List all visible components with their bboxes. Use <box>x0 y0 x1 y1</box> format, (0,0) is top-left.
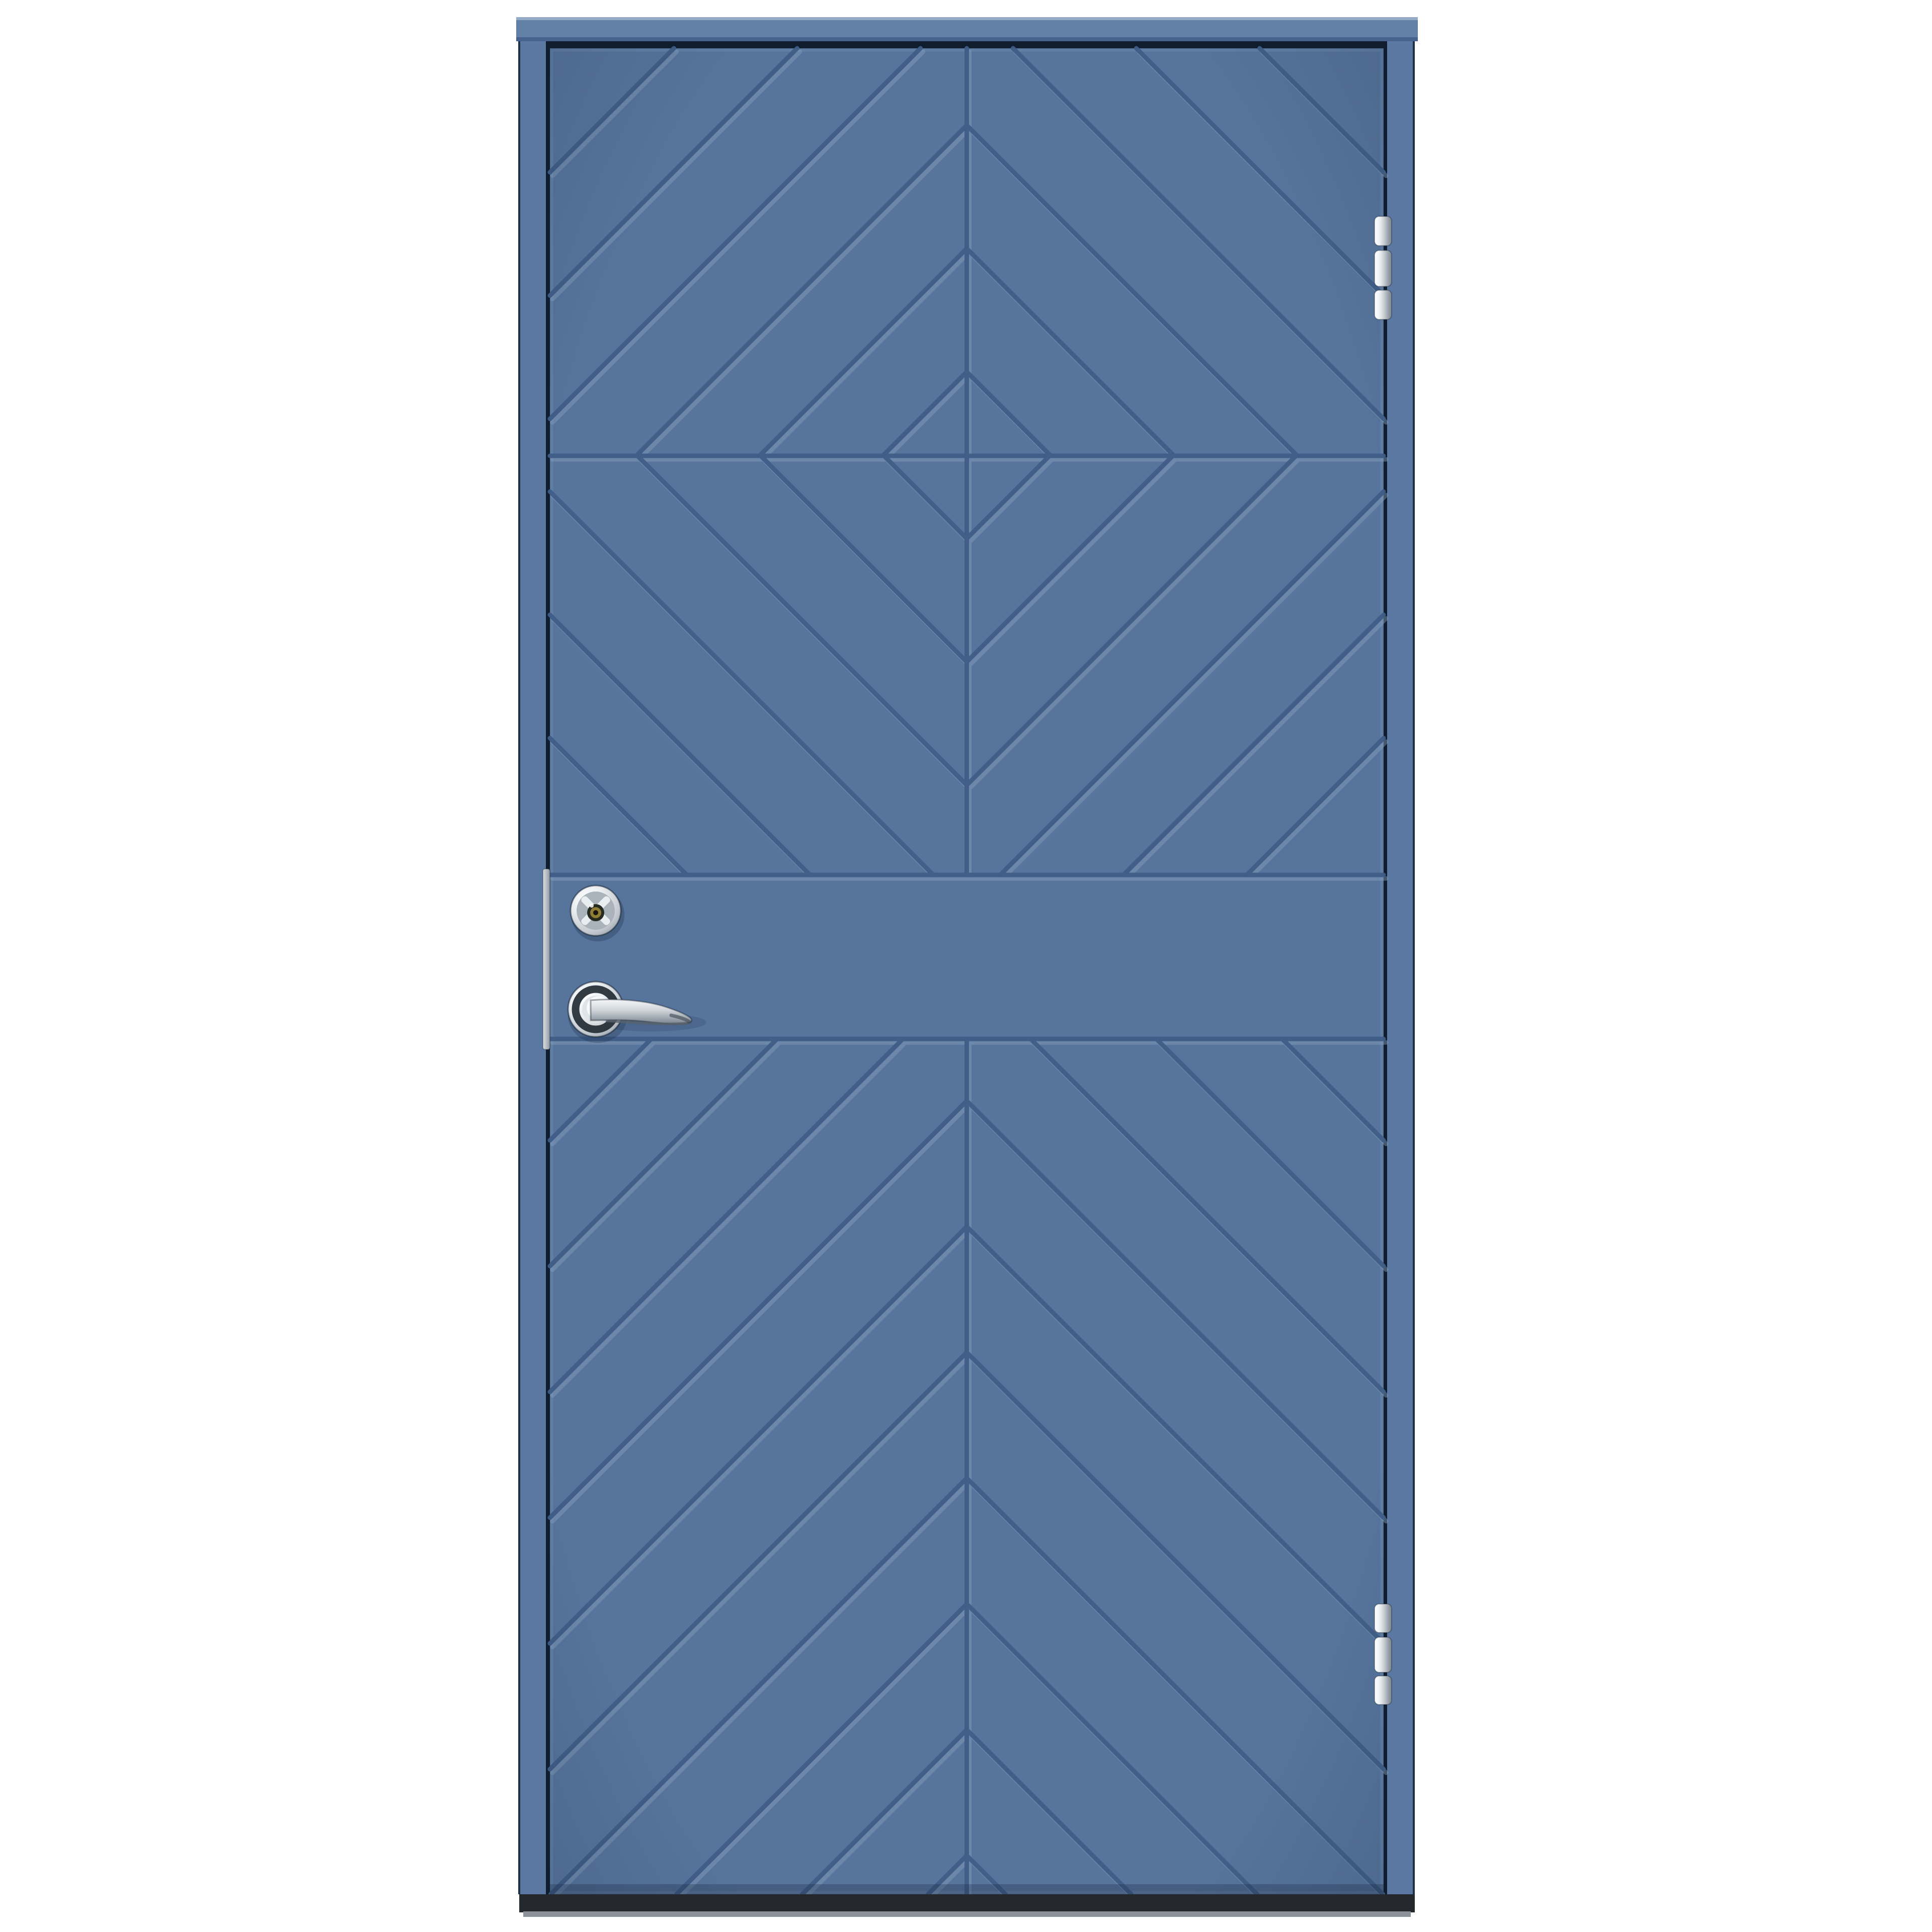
keyhole-slot <box>593 910 598 915</box>
lock-cylinder-glint <box>590 904 594 908</box>
hinge-barrel-segment <box>1375 1637 1392 1672</box>
threshold-bar <box>519 1894 1415 1912</box>
edge-security-plate <box>543 869 550 1050</box>
hinge-barrel-segment <box>1375 216 1392 246</box>
head-casing <box>516 20 1418 37</box>
threshold-sill <box>523 1911 1411 1917</box>
left-jamb <box>520 41 546 1894</box>
door-illustration <box>0 0 1932 1932</box>
right-frame-edge <box>1413 41 1415 1894</box>
hinge-barrel-segment <box>1375 1676 1392 1705</box>
top-hinge <box>1375 216 1392 319</box>
hinge-barrel-segment <box>1375 251 1392 287</box>
door-product-photo <box>0 0 1932 1932</box>
head-casing-shadow <box>516 37 1418 41</box>
left-frame-edge <box>518 41 520 1894</box>
leaf-vignette <box>550 48 1384 1894</box>
hinge-barrel-segment <box>1375 1604 1392 1633</box>
bottom-hinge <box>1375 1604 1392 1705</box>
leaf-bottom-shadow <box>550 1884 1384 1894</box>
hinge-barrel-segment <box>1375 290 1392 319</box>
